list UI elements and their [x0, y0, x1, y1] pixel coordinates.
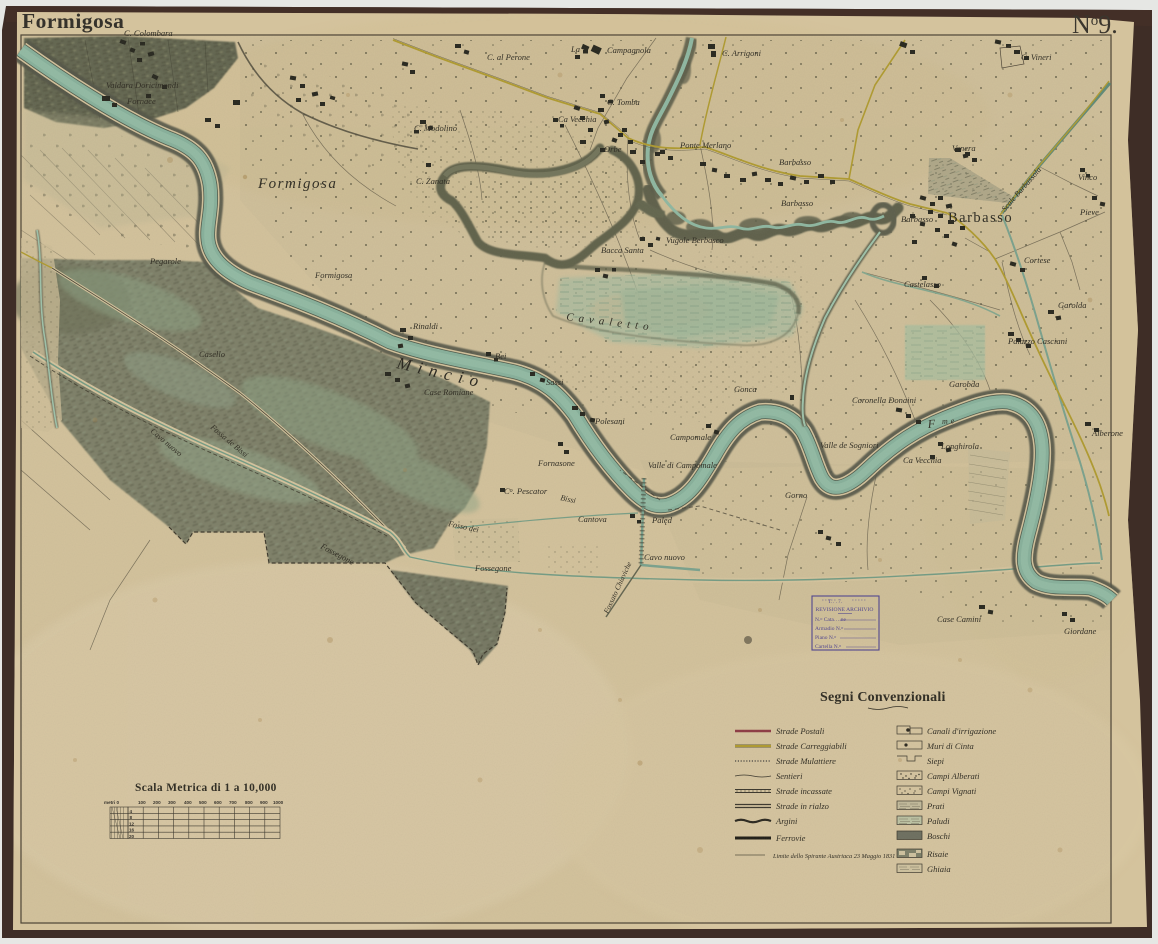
svg-text:Formigosa: Formigosa: [22, 9, 124, 33]
